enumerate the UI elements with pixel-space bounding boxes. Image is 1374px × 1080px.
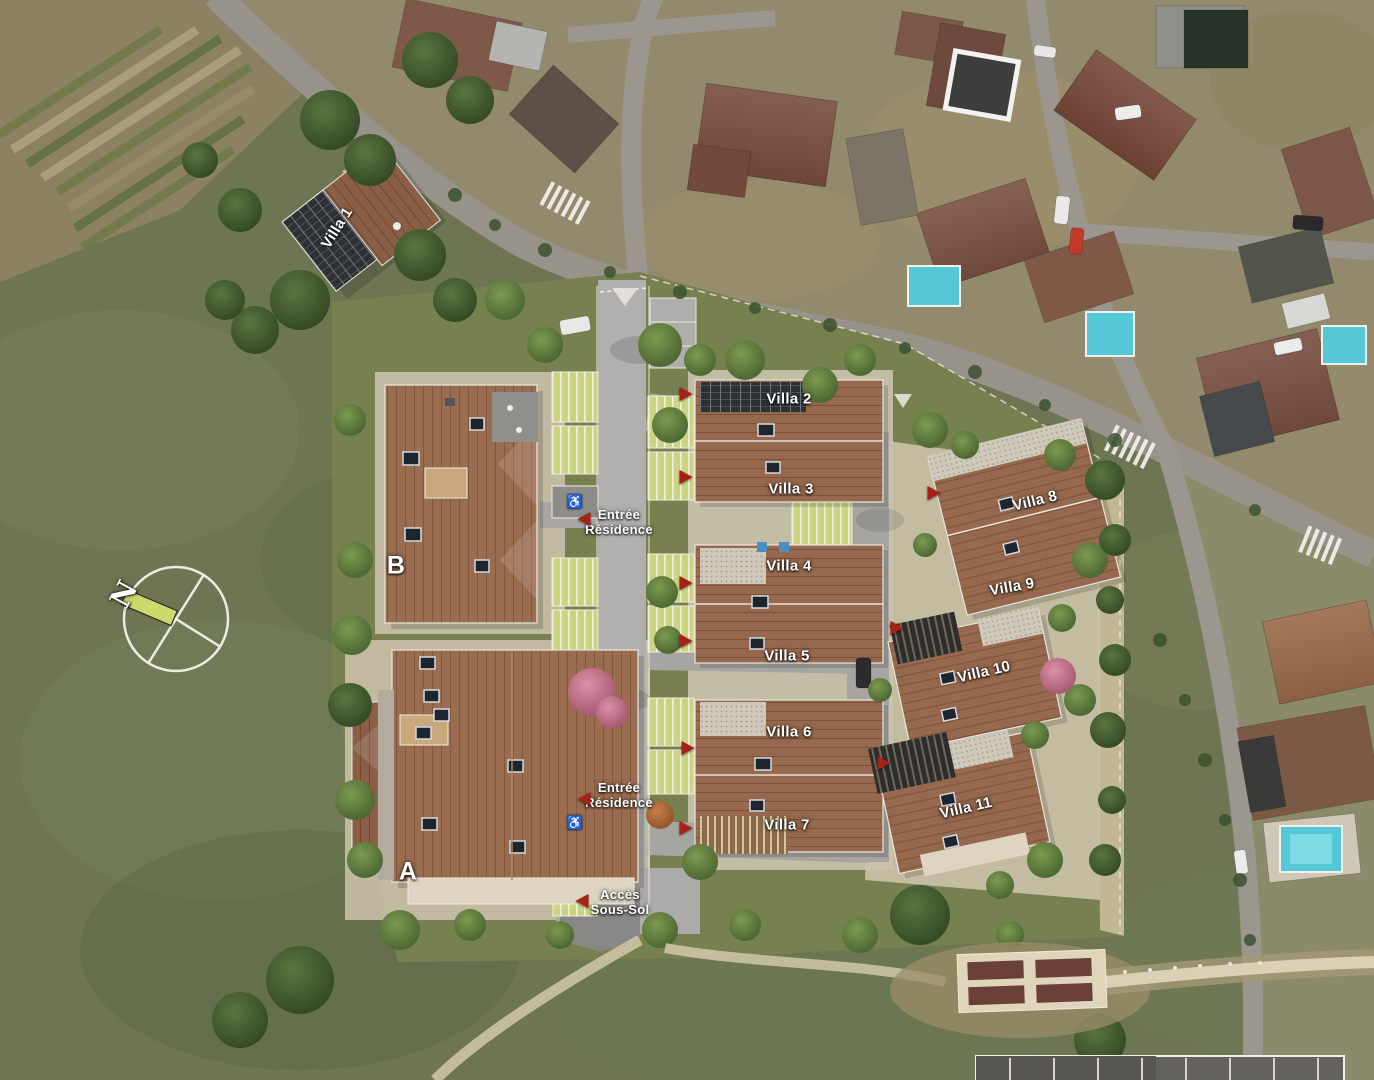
villa-6-label: Villa 6 [766, 724, 811, 741]
building-a-label: A [399, 858, 417, 887]
garden-beds [957, 949, 1107, 1012]
villa-entry-arrow-icon [680, 821, 693, 835]
villa-5-label: Villa 5 [764, 648, 809, 665]
villa-4-label: Villa 4 [766, 558, 811, 575]
entrance-top-line1: Entrée [585, 508, 653, 523]
villa-3-label: Villa 3 [768, 481, 813, 498]
building-b-label: B [387, 552, 405, 581]
entrance-arrow-icon [578, 512, 591, 526]
basement-access-line1: Accès [591, 888, 650, 903]
entrance-arrow-icon [578, 792, 591, 806]
villa-2-label: Villa 2 [766, 391, 811, 408]
entrance-top-label: Entrée Résidence [585, 508, 653, 538]
entrance-bottom-line1: Entrée [585, 781, 653, 796]
villa-entry-arrow-icon [680, 576, 693, 590]
building-b-roof [385, 385, 543, 629]
handicap-parking-icon: ♿ [567, 815, 583, 831]
villa-entry-arrow-icon [891, 621, 904, 635]
site-plan-aerial-view: Villa 1 Villa 2 Villa 3 Villa 4 Villa 5 … [0, 0, 1374, 1080]
entrance-bottom-line2: Résidence [585, 796, 653, 811]
basement-access-line2: Sous-Sol [591, 903, 650, 918]
villa-entry-arrow-icon [680, 387, 693, 401]
handicap-parking-icon: ♿ [567, 494, 583, 510]
villa-entry-arrow-icon [878, 756, 891, 770]
entrance-bottom-label: Entrée Résidence [585, 781, 653, 811]
villa-entry-arrow-icon [682, 741, 695, 755]
aerial-map-graphic [0, 0, 1374, 1080]
villa-entry-arrow-icon [680, 470, 693, 484]
basement-access-label: Accès Sous-Sol [591, 888, 650, 918]
villa-7-label: Villa 7 [764, 817, 809, 834]
entrance-top-line2: Résidence [585, 523, 653, 538]
basement-arrow-icon [576, 894, 589, 908]
bottom-building-roof [976, 1056, 1344, 1080]
villa-entry-arrow-icon [928, 486, 941, 500]
villa-entry-arrow-icon [680, 634, 693, 648]
